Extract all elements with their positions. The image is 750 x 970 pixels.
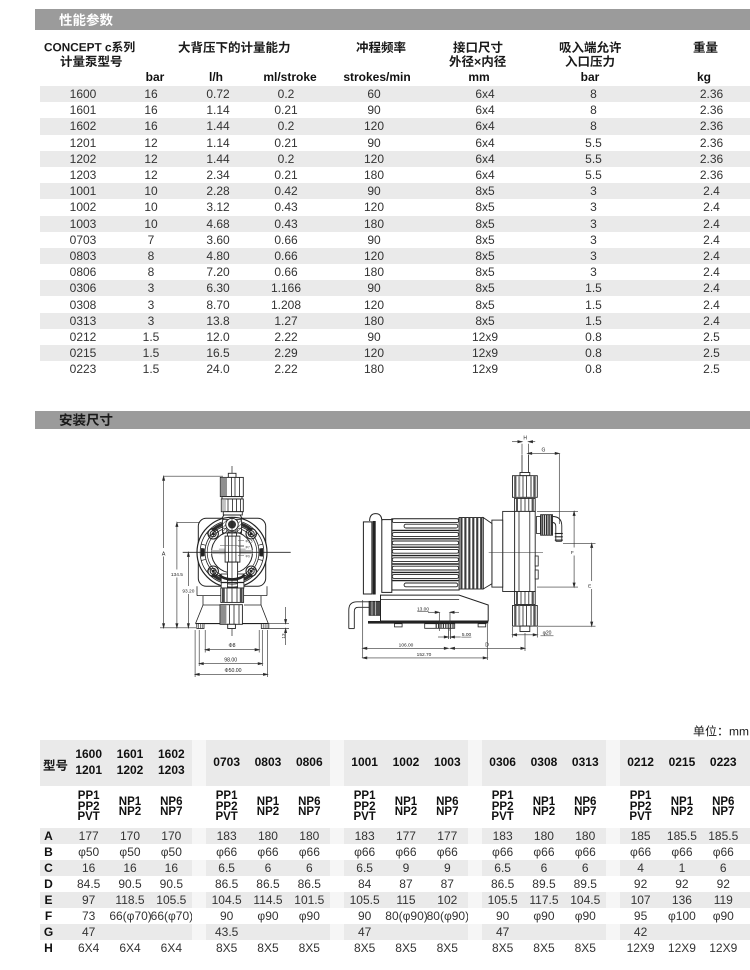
svg-text:Φ9: Φ9 (246, 554, 251, 558)
svg-text:D: D (485, 642, 489, 648)
svg-text:Φ5.5: Φ5.5 (246, 540, 253, 544)
svg-text:A: A (162, 551, 166, 557)
svg-text:F: F (571, 550, 574, 556)
svg-text:G: G (542, 448, 546, 454)
svg-text:93.20: 93.20 (182, 589, 194, 595)
svg-text:152.70: 152.70 (417, 652, 432, 658)
svg-text:134.5: 134.5 (171, 572, 183, 578)
svg-text:H: H (523, 436, 527, 442)
svg-text:Φ7: Φ7 (246, 545, 251, 549)
svg-text:φ20: φ20 (543, 630, 552, 636)
svg-text:E: E (588, 584, 591, 590)
svg-text:106.00: 106.00 (399, 642, 414, 648)
svg-text:Φ50.00: Φ50.00 (224, 668, 241, 674)
svg-text:13: 13 (281, 633, 286, 639)
svg-text:Φ8: Φ8 (228, 643, 235, 649)
svg-text:98.00: 98.00 (224, 657, 237, 663)
